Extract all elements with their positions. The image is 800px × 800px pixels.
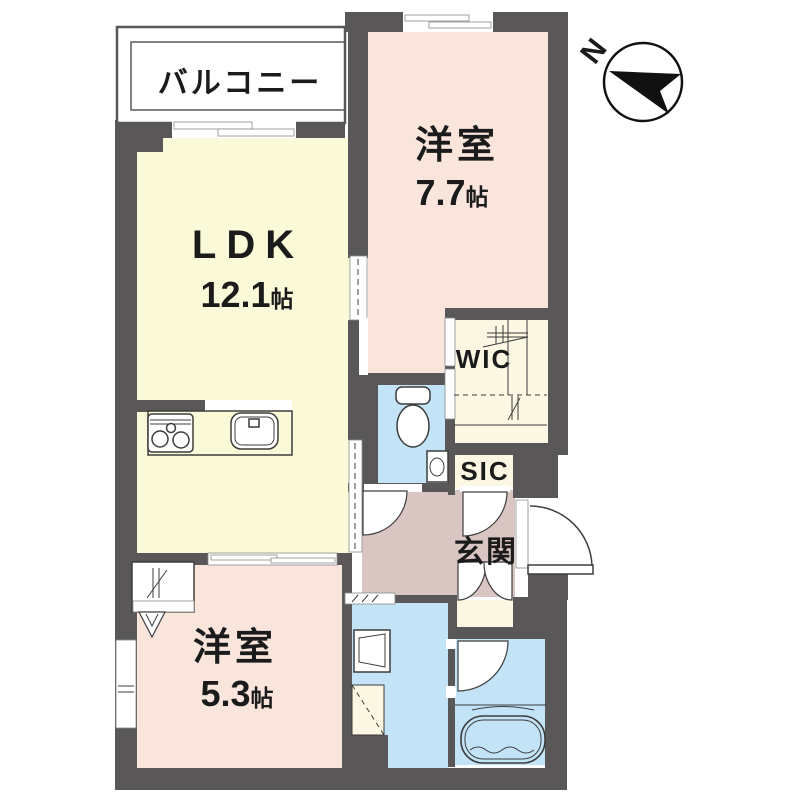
wall-segment [348,12,368,258]
window-sash [405,15,469,21]
closet-door [133,601,194,612]
sliding-door-panel [211,555,277,560]
stove-burner [167,424,176,433]
wic-door [445,318,455,366]
floor-plan-page: バルコニー 洋室 7.7帖 LDK 12.1帖 洋室 5.3帖 WIC SIC … [0,0,800,800]
floor-plan: バルコニー 洋室 7.7帖 LDK 12.1帖 洋室 5.3帖 WIC SIC … [0,0,800,800]
door-pocket [359,318,368,375]
wall-segment [393,595,448,603]
window-bedroom2 [116,640,136,728]
sliding-door-panel [271,558,335,563]
bedroom1-label: 洋室 [415,124,499,167]
sink-faucet [249,419,259,427]
wic-door [445,369,455,419]
sic-door-gap [460,486,510,492]
window-sash [429,22,491,28]
window-sash [218,129,294,136]
ldk-floor [137,138,350,553]
toilet-icon [397,405,429,447]
stove-burner [152,431,168,447]
bedroom1-floor [368,32,548,308]
wall-segment [448,455,455,495]
counter-pass [205,400,292,412]
wall-segment [362,440,378,490]
wall-segment [448,627,567,639]
entrance-door-swing [530,506,592,566]
stove-burner [173,432,189,448]
bedroom1-corridor-floor [368,308,445,373]
wall-segment [115,768,567,790]
bathroom-door-jamb [446,686,456,698]
wall-segment [545,595,567,790]
window-sash [174,122,252,129]
wall-segment [445,308,551,320]
ldk-label: LDK [192,223,304,267]
bathroom-door-jamb [446,639,456,649]
entrance-door-leaf [528,565,593,574]
wic-label: WIC [456,344,513,374]
wall-segment [448,637,455,767]
compass: N [574,33,682,121]
entrance-label: 玄関 [454,535,518,569]
wall-segment [342,735,388,790]
toilet-tank [396,387,430,404]
sliding-door-washroom [345,593,395,604]
wall-segment [348,385,378,440]
wall-segment [513,443,558,498]
wall-segment [137,138,163,152]
balcony-label: バルコニー [158,67,322,100]
wall-segment [513,597,545,628]
wall-segment [548,12,568,455]
bedroom2-label: 洋室 [193,626,277,669]
sic-label: SIC [460,456,509,486]
shoe-cabinet [455,600,513,627]
wall-segment [135,400,205,412]
